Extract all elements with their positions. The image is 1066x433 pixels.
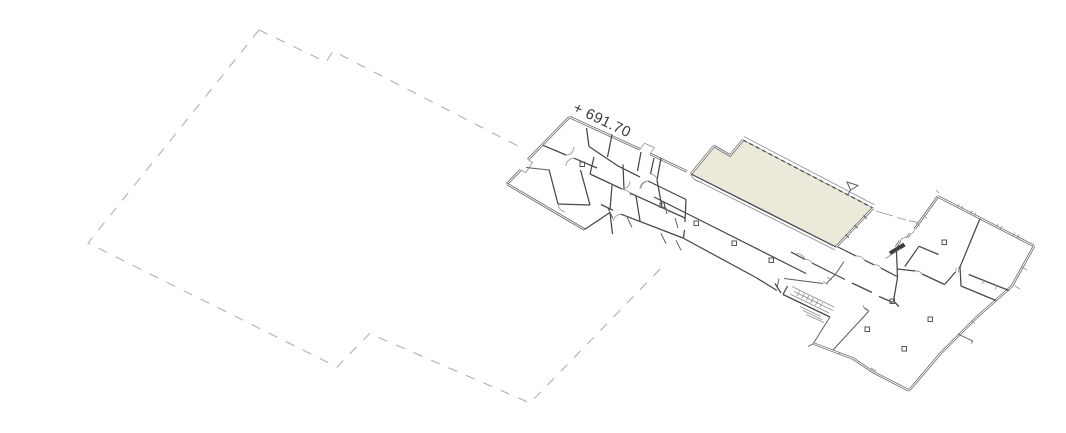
- svg-text:+ 691.70: + 691.70: [570, 99, 633, 141]
